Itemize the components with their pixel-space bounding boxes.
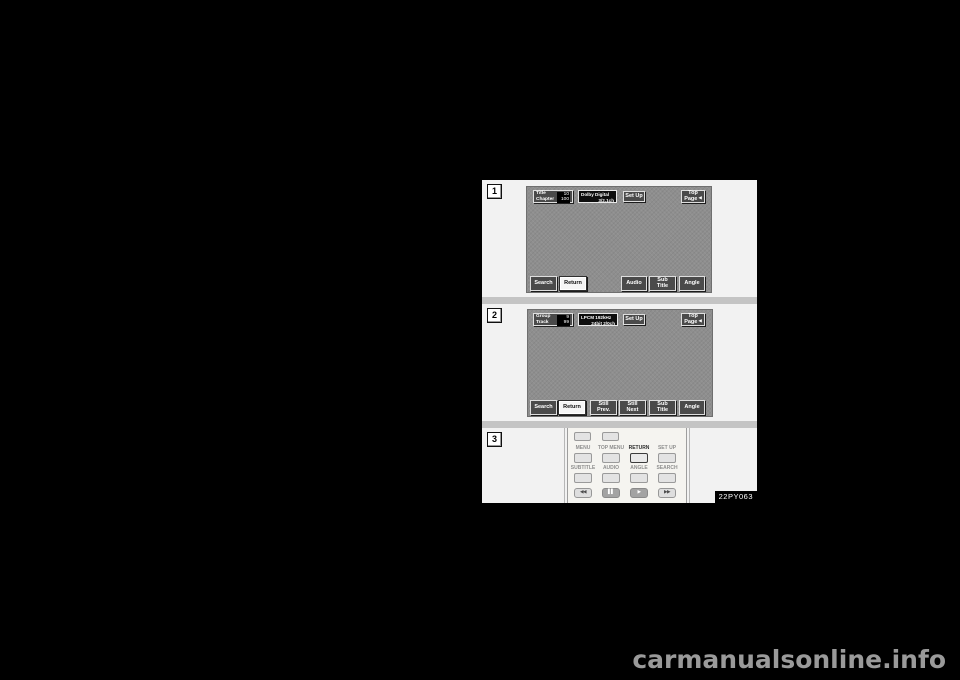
manual-page: 1 Title 10 Chapter 100 Dolby Digital 3/2… [0,0,960,680]
dvd-video-touchscreen: Title 10 Chapter 100 Dolby Digital 3/2.1… [526,186,712,293]
lpcm-format-display: LPCM 192kHz 24bit 2/0ch [578,313,618,326]
chapter-value: 100 [557,197,570,202]
search-button[interactable]: Search [530,400,557,415]
return-label: RETURN [625,446,653,451]
top-page-button[interactable]: Top Page ◀ [681,313,705,326]
return-button[interactable] [630,453,648,463]
panel-2-number-badge: 2 [487,308,502,323]
play-icon: ▶ [637,491,640,496]
top-page-button[interactable]: Top Page ◀ [681,190,705,203]
still-prev-line2: Prev. [597,408,610,414]
left-arrow-icon: ◀ [698,320,701,325]
watermark-text: carmanualsonline.info [632,645,946,674]
panel-3-number-badge: 3 [487,432,502,447]
audio-button[interactable]: Audio [621,276,647,291]
play-button[interactable]: ▶ [630,488,648,498]
remote-top-button-2[interactable] [602,432,619,441]
angle-button[interactable]: Angle [679,400,705,415]
audio-format-line1: Dolby Digital [581,192,614,198]
search-button[interactable]: Search [530,276,557,291]
subtitle-button[interactable] [574,473,592,483]
top-page-line2: Page [684,320,697,326]
subtitle-label: SUBTITLE [569,466,597,471]
set-up-label: SET UP [653,446,681,451]
panel-2-dvd-audio: 2 Group 9 Track 99 LPCM 192kHz 24bit 2/0… [482,304,757,421]
panel-separator [482,421,757,428]
track-label: Track [536,321,549,326]
still-next-line2: Next [627,408,639,414]
set-up-button[interactable] [658,453,676,463]
panel-separator [482,297,757,304]
panel-1-dvd-video: 1 Title 10 Chapter 100 Dolby Digital 3/2… [482,180,757,297]
remote-control-panel: MENU TOP MENU RETURN SET UP SUBTITLE AUD… [567,428,687,503]
sub-title-line2: Title [657,408,668,414]
top-menu-label: TOP MENU [597,446,625,451]
lpcm-line2: 24bit 2/0ch [581,321,615,327]
rewind-button[interactable]: ◀◀ [574,488,592,498]
still-next-button[interactable]: Still Next [619,400,646,415]
group-track-display: Group 9 Track 99 [533,313,573,326]
lpcm-line1: LPCM 192kHz [581,315,615,321]
menu-label: MENU [569,446,597,451]
search-label: SEARCH [653,466,681,471]
top-menu-button[interactable] [602,453,620,463]
audio-format-line2: 3/2.1ch [581,198,614,204]
audio-button[interactable] [602,473,620,483]
return-button[interactable]: Return [558,400,586,415]
return-button[interactable]: Return [559,276,587,291]
set-up-button[interactable]: Set Up [623,191,645,202]
angle-label: ANGLE [625,466,653,471]
sub-title-button[interactable]: Sub Title [649,400,676,415]
remote-top-button-1[interactable] [574,432,591,441]
pause-icon: ▌▌ [608,491,614,496]
search-button[interactable] [658,473,676,483]
set-up-button[interactable]: Set Up [623,314,645,325]
fast-forward-icon: ▶▶ [664,491,670,496]
angle-button[interactable]: Angle [679,276,705,291]
fast-forward-button[interactable]: ▶▶ [658,488,676,498]
panel-1-number-badge: 1 [487,184,502,199]
dvd-audio-touchscreen: Group 9 Track 99 LPCM 192kHz 24bit 2/0ch… [527,309,713,417]
title-chapter-display: Title 10 Chapter 100 [533,190,573,203]
sub-title-line2: Title [657,284,668,290]
left-arrow-icon: ◀ [698,197,701,202]
still-prev-button[interactable]: Still Prev. [590,400,617,415]
audio-label: AUDIO [597,466,625,471]
figure-code: 22PY063 [715,491,757,504]
track-value: 99 [557,320,570,325]
dvd-controls-figure: 1 Title 10 Chapter 100 Dolby Digital 3/2… [482,180,757,503]
sub-title-button[interactable]: Sub Title [649,276,676,291]
menu-button[interactable] [574,453,592,463]
angle-button[interactable] [630,473,648,483]
pause-button[interactable]: ▌▌ [602,488,620,498]
rewind-icon: ◀◀ [580,491,586,496]
audio-format-display: Dolby Digital 3/2.1ch [578,190,617,203]
chapter-label: Chapter [536,198,554,203]
top-page-line2: Page [684,197,697,203]
